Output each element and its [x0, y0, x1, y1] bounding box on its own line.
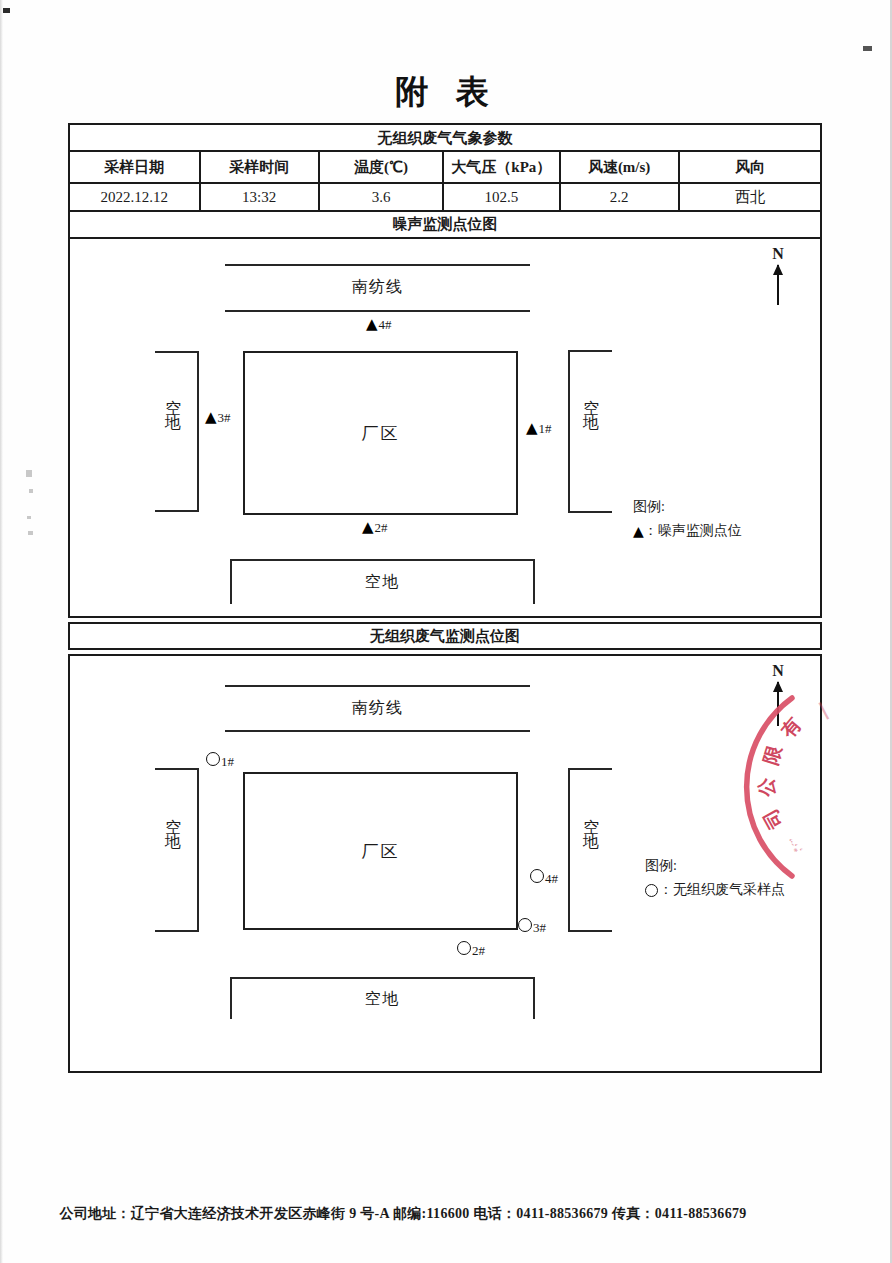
scan-smudge — [29, 489, 33, 493]
circle-marker-icon — [206, 752, 220, 766]
svg-text:丨: 丨 — [811, 697, 838, 724]
right-area-left-line — [568, 768, 570, 932]
gas-diagram: N 丨 有 限 公 司 ,*,-., 南纺线 1# — [68, 654, 822, 1073]
right-area-label: 空地 — [580, 387, 601, 415]
legend-title: 图例: — [633, 495, 742, 519]
triangle-marker-icon: ▲ — [633, 524, 644, 539]
road-line-bottom — [225, 310, 530, 312]
gas-point-1: 1# — [206, 752, 234, 766]
left-area-right-line — [197, 768, 199, 932]
noise-point-3: ▲ 3# — [205, 410, 231, 425]
triangle-marker-icon: ▲ — [366, 317, 378, 332]
triangle-marker-icon: ▲ — [526, 421, 538, 436]
factory-area: 厂区 — [243, 772, 518, 930]
gas-point-4: 4# — [530, 869, 558, 883]
gas-legend: 图例: ：无组织废气采样点 — [645, 854, 785, 902]
north-label: N — [758, 245, 798, 263]
value-temperature: 3.6 — [320, 184, 445, 210]
legend-entry: ：无组织废气采样点 — [645, 878, 785, 902]
circle-marker-icon — [645, 884, 658, 897]
col-header-wind-direction: 风向 — [680, 152, 820, 182]
factory-area: 厂区 — [243, 351, 518, 515]
gas-point-2: 2# — [457, 941, 485, 955]
scan-smudge — [26, 470, 32, 477]
value-sample-time: 13:32 — [201, 184, 320, 210]
left-area-bottom-line — [155, 930, 199, 932]
triangle-marker-icon: ▲ — [362, 520, 374, 535]
factory-label: 厂区 — [362, 422, 400, 445]
left-area-top-line — [155, 351, 199, 353]
col-header-sample-date: 采样日期 — [70, 152, 201, 182]
bottom-area-label: 空地 — [365, 989, 401, 1010]
scan-speck — [3, 8, 10, 13]
right-area-bottom-line — [568, 930, 612, 932]
factory-label: 厂区 — [362, 840, 400, 863]
triangle-marker-icon: ▲ — [205, 410, 217, 425]
left-area-bottom-line — [155, 510, 199, 512]
right-area-left-line — [568, 350, 570, 513]
gas-point-3: 3# — [518, 918, 546, 932]
col-header-wind-speed: 风速(m/s) — [561, 152, 680, 182]
circle-marker-icon — [518, 918, 532, 932]
road-line-top — [225, 264, 530, 266]
bottom-area: 空地 — [230, 559, 535, 604]
north-label: N — [758, 662, 798, 680]
meteo-table-value-row: 2022.12.12 13:32 3.6 102.5 2.2 西北 — [70, 184, 820, 212]
right-area-label: 空地 — [580, 806, 601, 834]
right-area-top-line — [568, 350, 612, 352]
left-area-label: 空地 — [162, 387, 183, 415]
north-indicator: N — [758, 245, 798, 305]
svg-text:公: 公 — [755, 776, 778, 799]
col-header-sample-time: 采样时间 — [201, 152, 320, 182]
col-header-temperature: 温度(℃) — [320, 152, 445, 182]
svg-text:有: 有 — [776, 714, 805, 743]
value-wind-speed: 2.2 — [561, 184, 680, 210]
noise-diagram: N 南纺线 ▲ 4# 空地 ▲ 3# 厂区 ▲ 1# 空地 — [68, 237, 822, 618]
road-label: 南纺线 — [225, 277, 530, 298]
noise-diagram-section-title: 噪声监测点位图 — [70, 212, 820, 237]
road-line-bottom — [225, 730, 530, 732]
value-pressure: 102.5 — [444, 184, 560, 210]
right-area-top-line — [568, 768, 612, 770]
scan-smudge — [28, 531, 33, 535]
document-page: 附 表 无组织废气气象参数 采样日期 采样时间 温度(℃) 大气压（kPa） 风… — [0, 0, 892, 1263]
noise-legend: 图例: ▲ ：噪声监测点位 — [633, 495, 742, 543]
noise-point-2: ▲ 2# — [362, 520, 388, 535]
noise-point-4: ▲ 4# — [366, 317, 392, 332]
road-line-top — [225, 685, 530, 687]
road-label: 南纺线 — [225, 698, 530, 719]
scan-speck — [863, 46, 872, 51]
bottom-area-label: 空地 — [365, 572, 401, 593]
company-address-footer: 公司地址：辽宁省大连经济技术开发区赤峰街 9 号-A 邮编:116600 电话：… — [0, 1205, 806, 1223]
legend-title: 图例: — [645, 854, 785, 878]
svg-text:限: 限 — [760, 742, 786, 767]
scan-smudge — [27, 516, 31, 519]
left-area-top-line — [155, 768, 199, 770]
svg-text:,*,-.,: ,*,-., — [784, 837, 803, 855]
meteo-table-title: 无组织废气气象参数 — [70, 125, 820, 152]
north-arrow-icon — [777, 265, 779, 305]
left-area-label: 空地 — [162, 806, 183, 834]
left-area-right-line — [197, 351, 199, 512]
scan-edge-left — [0, 0, 3, 1263]
value-wind-direction: 西北 — [680, 184, 820, 210]
svg-text:司: 司 — [759, 805, 787, 833]
page-title: 附 表 — [0, 70, 892, 115]
circle-marker-icon — [530, 869, 544, 883]
bottom-area: 空地 — [230, 977, 535, 1019]
legend-entry: ▲ ：噪声监测点位 — [633, 519, 742, 543]
circle-marker-icon — [457, 941, 471, 955]
gas-diagram-section-title: 无组织废气监测点位图 — [68, 622, 822, 650]
noise-point-1: ▲ 1# — [526, 421, 552, 436]
meteo-table: 无组织废气气象参数 采样日期 采样时间 温度(℃) 大气压（kPa） 风速(m/… — [68, 123, 822, 239]
meteo-table-header-row: 采样日期 采样时间 温度(℃) 大气压（kPa） 风速(m/s) 风向 — [70, 152, 820, 184]
value-sample-date: 2022.12.12 — [70, 184, 201, 210]
col-header-pressure: 大气压（kPa） — [444, 152, 560, 182]
right-area-bottom-line — [568, 511, 612, 513]
